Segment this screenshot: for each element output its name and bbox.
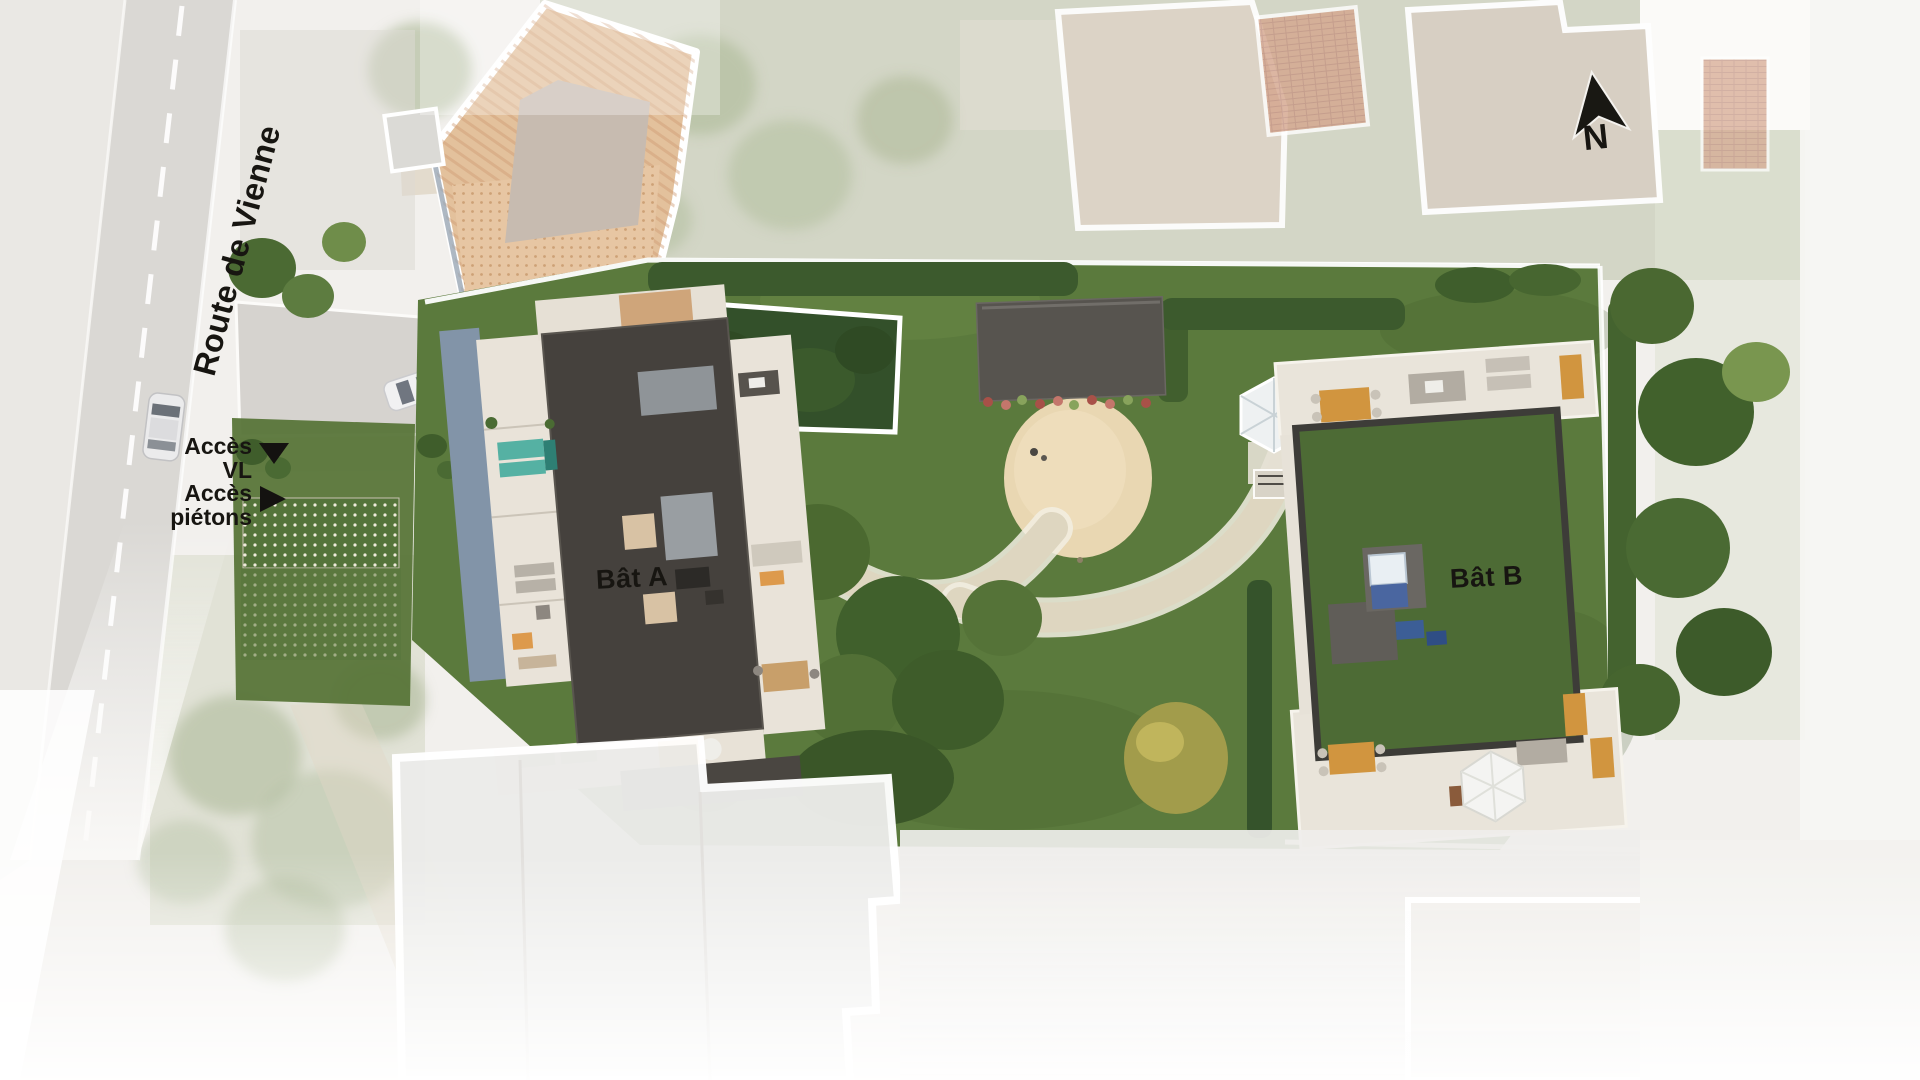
neighbor-roof-small — [1702, 58, 1768, 170]
building-b-green-roof — [1296, 410, 1580, 757]
yellow-tree — [1124, 702, 1228, 814]
site-plan-canvas: Route de Vienne Accès VL Accès piétons B… — [0, 0, 1920, 1080]
roof-vent-2 — [705, 589, 724, 605]
access-vl-line2: VL — [120, 458, 252, 482]
building-b — [1267, 341, 1626, 849]
solar-panel-1 — [1395, 620, 1424, 640]
access-vl-label: Accès VL — [120, 434, 252, 482]
roof-vent-1 — [675, 567, 711, 590]
roof-box-2 — [660, 492, 717, 560]
hedge-central — [1247, 580, 1272, 838]
annex — [384, 109, 443, 172]
triangle-down-icon — [259, 443, 289, 464]
building-b-label: Bât B — [1449, 560, 1524, 595]
access-vl-line1: Accès — [120, 434, 252, 458]
access-pedestrian-label: Accès piétons — [108, 481, 252, 529]
access-pedestrian-line1: Accès — [108, 481, 252, 505]
building-b-skylight — [1369, 553, 1407, 585]
neighbor-roof-terracotta — [1256, 7, 1368, 135]
triangle-right-icon — [260, 486, 286, 512]
building-a-label: Bât A — [595, 561, 669, 596]
access-pedestrian-line2: piétons — [108, 505, 252, 529]
hedge-row-building-b — [1160, 298, 1405, 330]
trellis-grid-faded — [241, 568, 401, 660]
compass-north-label: N — [1581, 117, 1610, 159]
neighbor-building-1 — [1058, 2, 1285, 228]
roof-box-1 — [638, 365, 718, 415]
solar-panel-2 — [1426, 630, 1447, 645]
garden-shed — [976, 297, 1165, 410]
fade-top — [420, 0, 720, 115]
bottom-fade — [0, 850, 1920, 1080]
roof-skylight-1 — [622, 513, 657, 550]
site-plan-graphics — [0, 0, 1920, 1080]
roof-skylight-2 — [643, 592, 677, 625]
hedge-east-vines — [1608, 300, 1636, 700]
neighbor-building-2 — [1408, 2, 1660, 212]
building-b-skylight-glass — [1371, 583, 1409, 609]
